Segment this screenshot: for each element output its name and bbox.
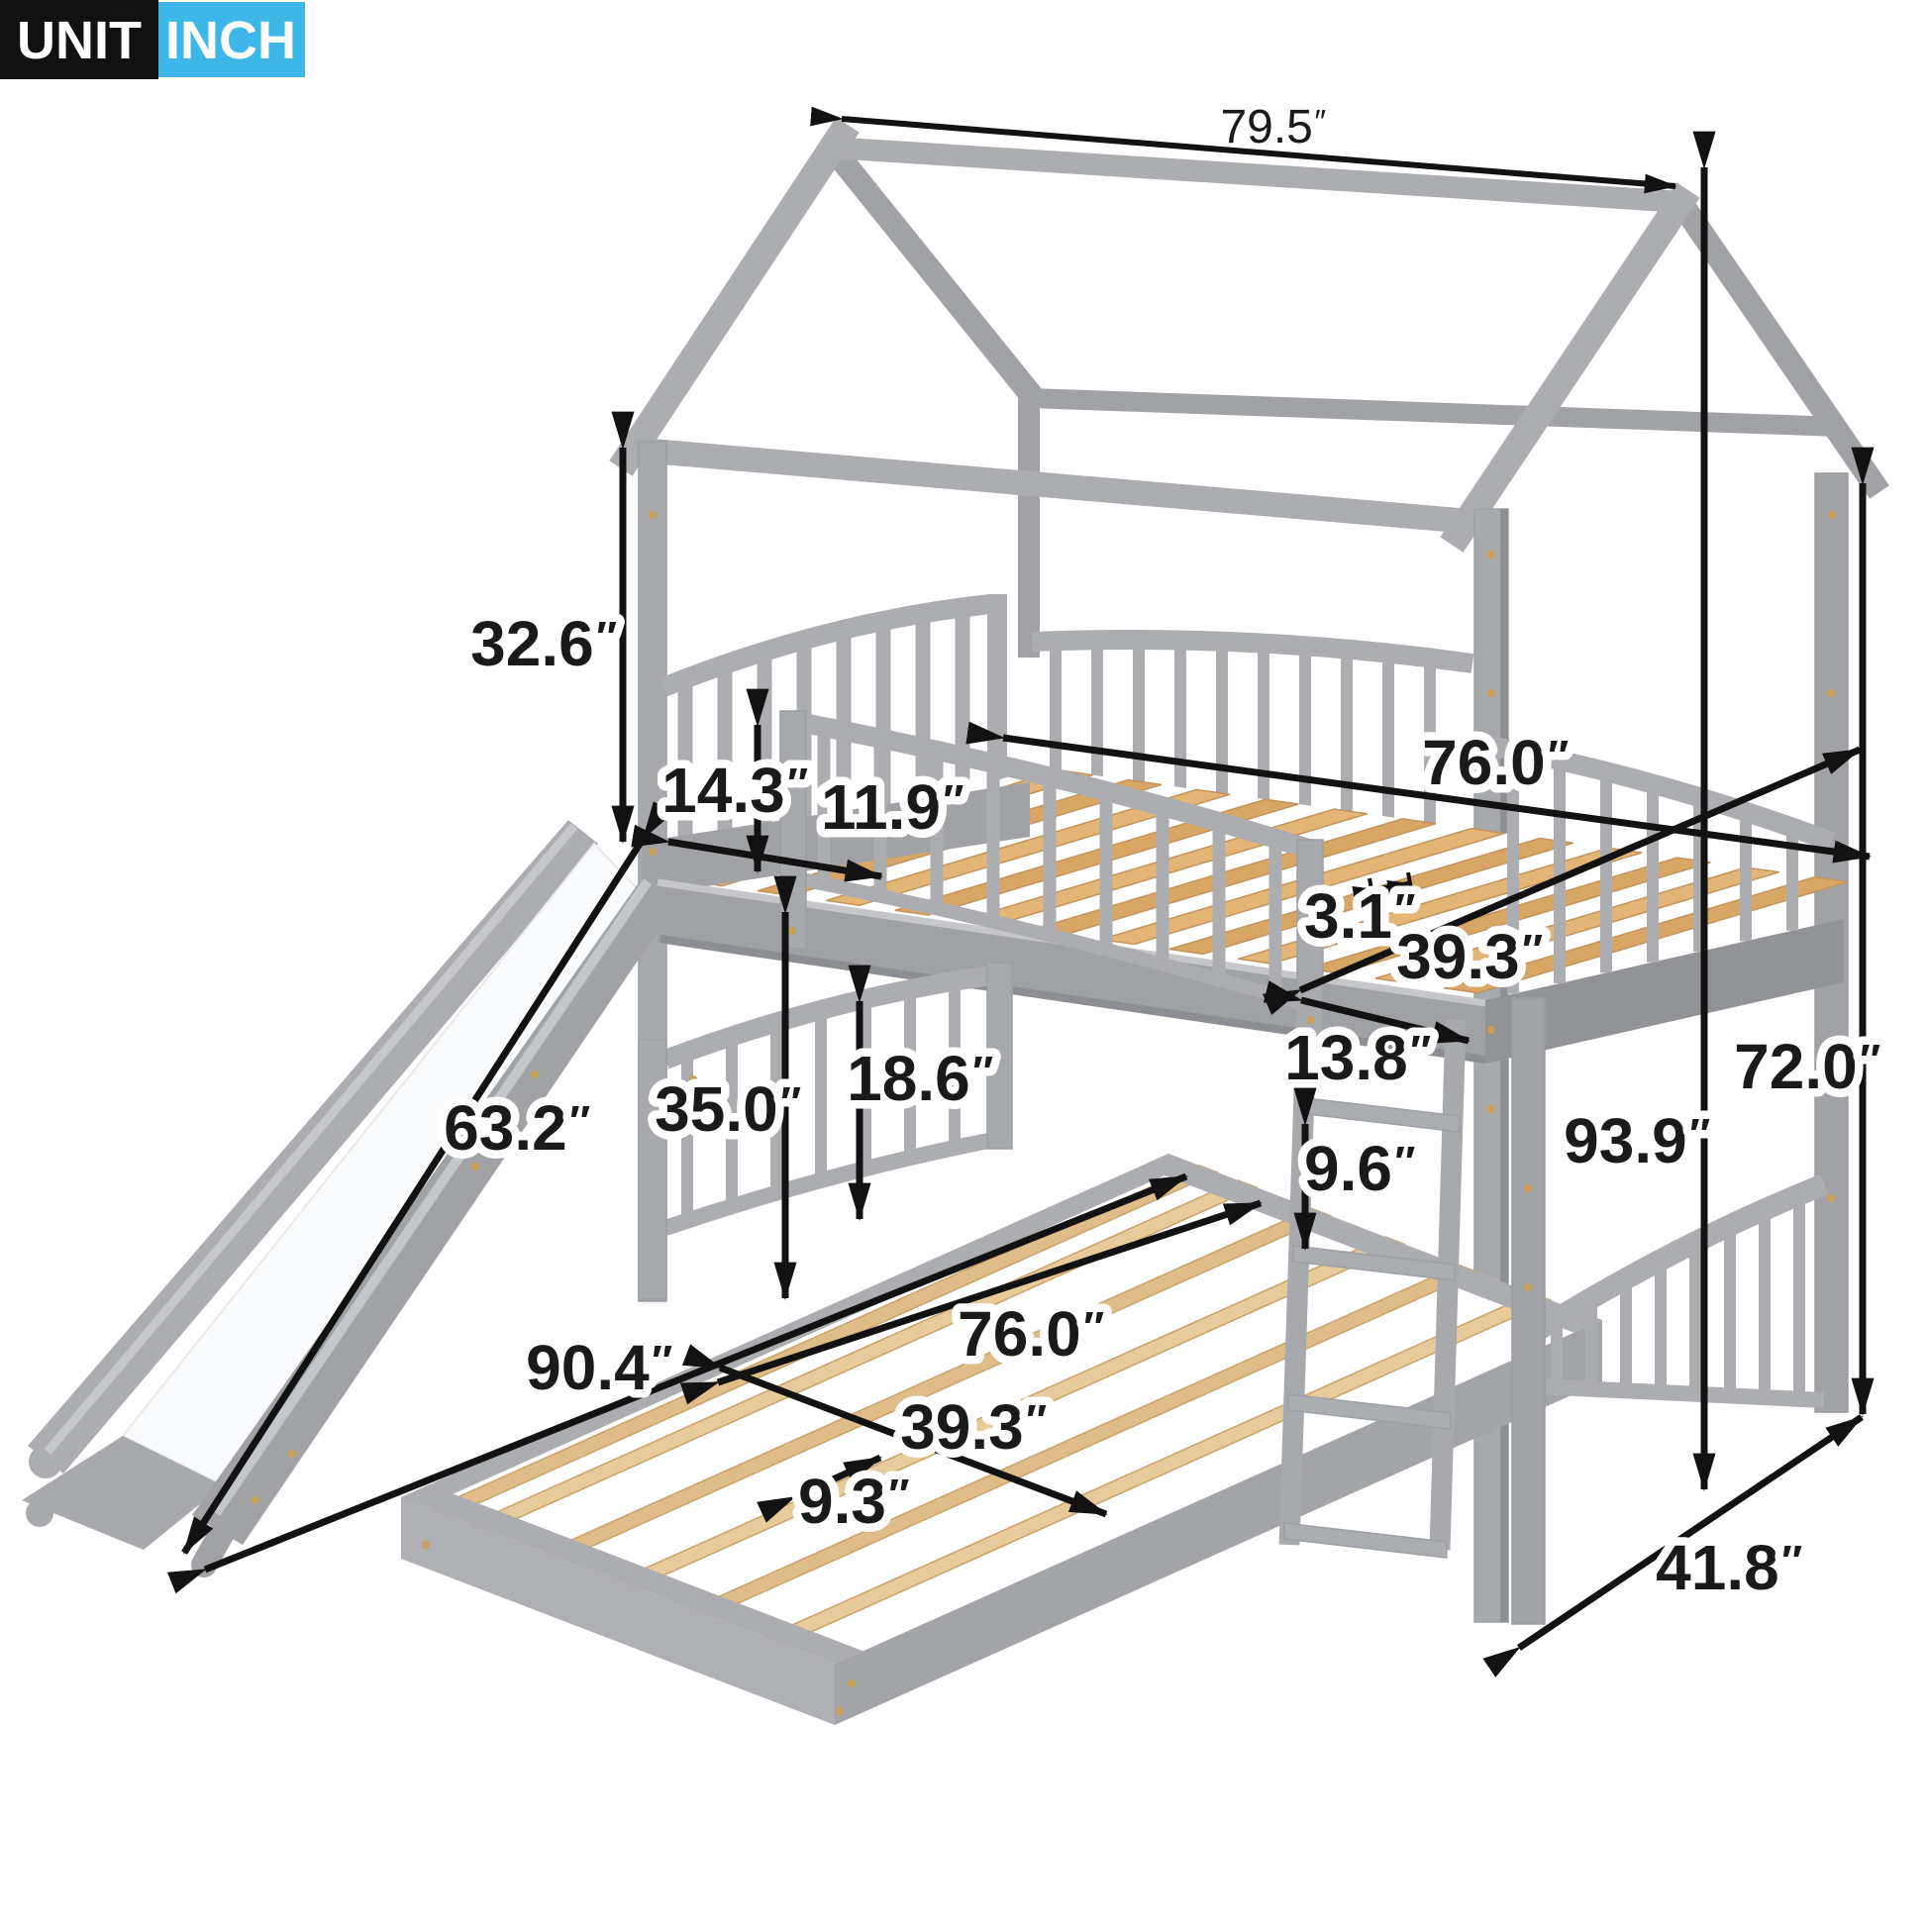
svg-text:INCH: INCH	[165, 11, 296, 70]
svg-text:UNIT: UNIT	[17, 11, 142, 70]
svg-text:79.5″: 79.5″	[1220, 101, 1325, 153]
